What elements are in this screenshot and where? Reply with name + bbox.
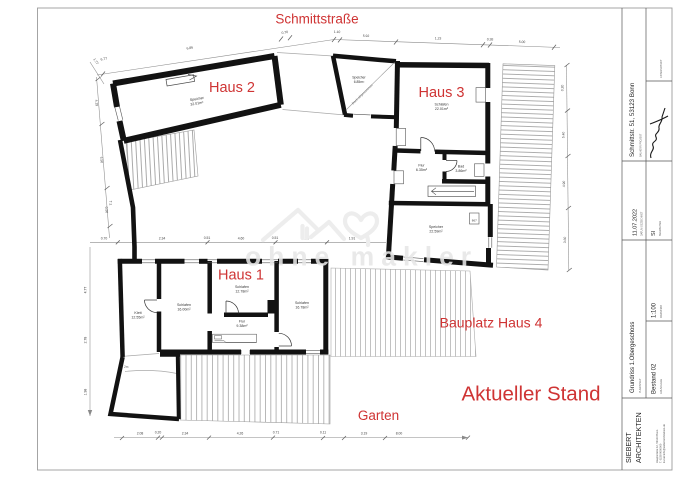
svg-text:0.50: 0.50 <box>104 206 109 213</box>
svg-text:Haus 2: Haus 2 <box>209 80 255 96</box>
svg-text:3.19: 3.19 <box>361 432 368 436</box>
svg-text:6.50: 6.50 <box>99 156 104 163</box>
svg-text:5.40: 5.40 <box>561 131 565 138</box>
svg-text:0.51: 0.51 <box>204 236 211 240</box>
svg-text:MASSSTAB: MASSSTAB <box>660 305 663 318</box>
svg-text:4.77: 4.77 <box>84 287 88 294</box>
svg-text:0.20: 0.20 <box>560 84 564 91</box>
svg-text:1.91: 1.91 <box>349 237 356 241</box>
svg-text:PLANINHALT: PLANINHALT <box>639 378 642 393</box>
svg-text:ARCHITEKTEN: ARCHITEKTEN <box>634 412 643 463</box>
svg-text:Grundriss 1.Obergeschoss: Grundriss 1.Obergeschoss <box>630 322 636 393</box>
svg-text:7.1: 7.1 <box>109 201 113 206</box>
svg-text:16.00m²: 16.00m² <box>177 308 191 312</box>
svg-text:3.60: 3.60 <box>563 236 567 243</box>
svg-text:Schmittstr. 51, 53123 Bonn: Schmittstr. 51, 53123 Bonn <box>629 82 636 157</box>
svg-text:GRUNDLAGE: GRUNDLAGE <box>660 378 663 394</box>
svg-text:12.55m²: 12.55m² <box>131 316 145 320</box>
svg-text:4.19: 4.19 <box>94 99 99 106</box>
svg-text:4.90: 4.90 <box>562 180 566 187</box>
svg-text:Garten: Garten <box>358 408 399 423</box>
svg-text:0.20: 0.20 <box>155 431 162 435</box>
svg-text:0.11: 0.11 <box>320 431 326 435</box>
svg-text:0.38: 0.38 <box>487 37 494 41</box>
svg-text:22.01m²: 22.01m² <box>435 107 449 111</box>
svg-text:Klett: Klett <box>134 311 141 315</box>
svg-text:E-mail info@siebertarchitekten: E-mail info@siebertarchitekten.de <box>662 423 666 463</box>
svg-text:2.08: 2.08 <box>137 432 144 436</box>
svg-text:16.78m²: 16.78m² <box>295 306 309 310</box>
svg-text:Bestand 02: Bestand 02 <box>652 363 658 394</box>
svg-text:UNTERSCHRIFT: UNTERSCHRIFT <box>660 59 663 78</box>
svg-text:8.00: 8.00 <box>396 432 403 436</box>
svg-text:0.51: 0.51 <box>272 236 279 240</box>
svg-text:Haus 3: Haus 3 <box>419 85 465 101</box>
svg-text:ohne makler: ohne makler <box>245 242 478 272</box>
svg-text:6.35m²: 6.35m² <box>416 168 428 172</box>
svg-text:Hauptstraße 12, 53123 Bonn: Hauptstraße 12, 53123 Bonn <box>655 429 659 463</box>
svg-text:Aktueller Stand: Aktueller Stand <box>461 383 600 406</box>
svg-text:BEARBEITER: BEARBEITER <box>659 221 662 236</box>
svg-text:Flur: Flur <box>418 164 425 168</box>
svg-text:4.26: 4.26 <box>237 432 244 436</box>
svg-text:5.92: 5.92 <box>363 34 370 38</box>
svg-text:6.85m²: 6.85m² <box>354 80 365 84</box>
svg-text:2m: 2m <box>124 365 129 369</box>
svg-text:Bad: Bad <box>458 165 464 169</box>
svg-text:Schlafen: Schlafen <box>177 303 191 307</box>
svg-text:DATUM GEZEICHNET: DATUM GEZEICHNET <box>641 211 644 236</box>
svg-text:SI: SI <box>651 230 657 236</box>
svg-text:Schmittstraße: Schmittstraße <box>275 12 358 27</box>
svg-text:2.34: 2.34 <box>182 432 189 436</box>
svg-text:1.10: 1.10 <box>334 30 341 34</box>
svg-text:22.59m²: 22.59m² <box>429 230 443 234</box>
svg-text:SIEBERT: SIEBERT <box>624 432 633 463</box>
svg-text:1.23: 1.23 <box>435 36 442 40</box>
svg-text:T. 0228 9000000: T. 0228 9000000 <box>659 443 663 463</box>
svg-text:Bauplatz Haus 4: Bauplatz Haus 4 <box>440 315 543 331</box>
svg-text:11.07.2022: 11.07.2022 <box>633 209 639 236</box>
svg-text:0.71: 0.71 <box>273 431 280 435</box>
svg-text:Flur: Flur <box>239 320 246 324</box>
svg-text:2.34: 2.34 <box>159 237 166 241</box>
svg-text:4.60: 4.60 <box>238 237 245 241</box>
svg-text:Schlafen: Schlafen <box>435 103 449 107</box>
svg-text:867: 867 <box>472 219 477 223</box>
svg-text:Schlafen: Schlafen <box>235 285 249 289</box>
svg-text:12.78m²: 12.78m² <box>235 290 249 294</box>
svg-text:0.70: 0.70 <box>101 237 108 241</box>
svg-text:1.98: 1.98 <box>84 389 88 396</box>
svg-text:5.00: 5.00 <box>519 40 526 44</box>
svg-text:1:100: 1:100 <box>652 302 658 318</box>
svg-text:Schlafen: Schlafen <box>295 301 309 305</box>
svg-text:3.86m²: 3.86m² <box>455 169 467 173</box>
svg-text:9.38m²: 9.38m² <box>236 324 248 328</box>
svg-text:Speicher: Speicher <box>429 225 444 229</box>
svg-text:2.78: 2.78 <box>84 337 88 344</box>
svg-text:BAUHERR PROJEKT: BAUHERR PROJEKT <box>640 133 643 157</box>
